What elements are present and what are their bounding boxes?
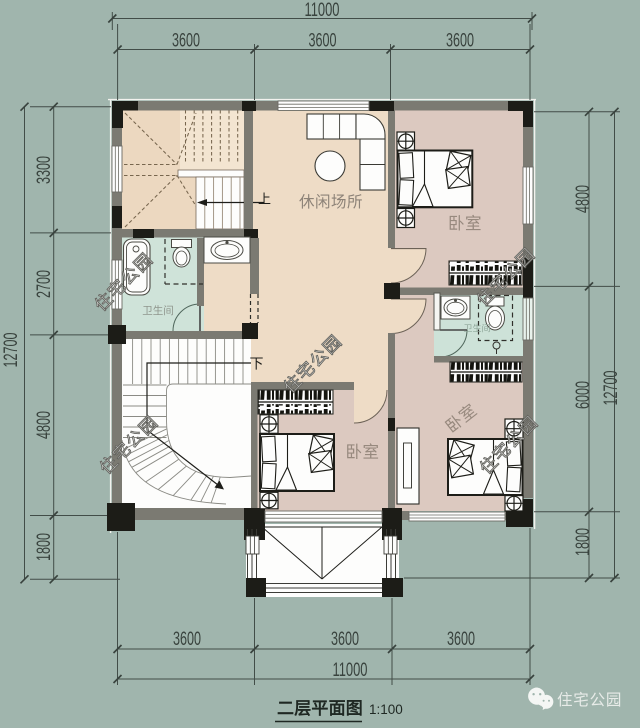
svg-text:4800: 4800 [34, 411, 55, 439]
svg-text:3600: 3600 [309, 31, 337, 52]
svg-text:6000: 6000 [573, 381, 594, 409]
svg-text:11000: 11000 [333, 660, 368, 681]
svg-text:住宅公园: 住宅公园 [557, 691, 622, 709]
svg-text:卧室: 卧室 [346, 443, 380, 462]
svg-text:3600: 3600 [447, 629, 475, 650]
svg-text:1800: 1800 [34, 533, 55, 561]
svg-text:休闲场所: 休闲场所 [299, 193, 363, 211]
svg-text:11000: 11000 [305, 0, 340, 21]
svg-text:2700: 2700 [34, 270, 55, 298]
svg-text:3600: 3600 [446, 31, 474, 52]
svg-text:上: 上 [258, 192, 271, 207]
svg-text:1:100: 1:100 [369, 702, 403, 717]
svg-text:卫生间: 卫生间 [142, 304, 174, 317]
svg-text:卧室: 卧室 [448, 214, 482, 233]
svg-text:3300: 3300 [34, 156, 55, 184]
svg-text:1800: 1800 [573, 528, 594, 556]
svg-text:3600: 3600 [172, 31, 200, 52]
svg-text:3600: 3600 [331, 629, 359, 650]
svg-text:下: 下 [250, 356, 264, 372]
svg-text:二层平面图: 二层平面图 [277, 699, 363, 718]
svg-text:3600: 3600 [173, 629, 201, 650]
svg-text:12700: 12700 [1, 333, 22, 368]
svg-text:4800: 4800 [573, 185, 594, 213]
svg-text:卫生间: 卫生间 [463, 323, 490, 334]
svg-text:12700: 12700 [601, 371, 622, 406]
